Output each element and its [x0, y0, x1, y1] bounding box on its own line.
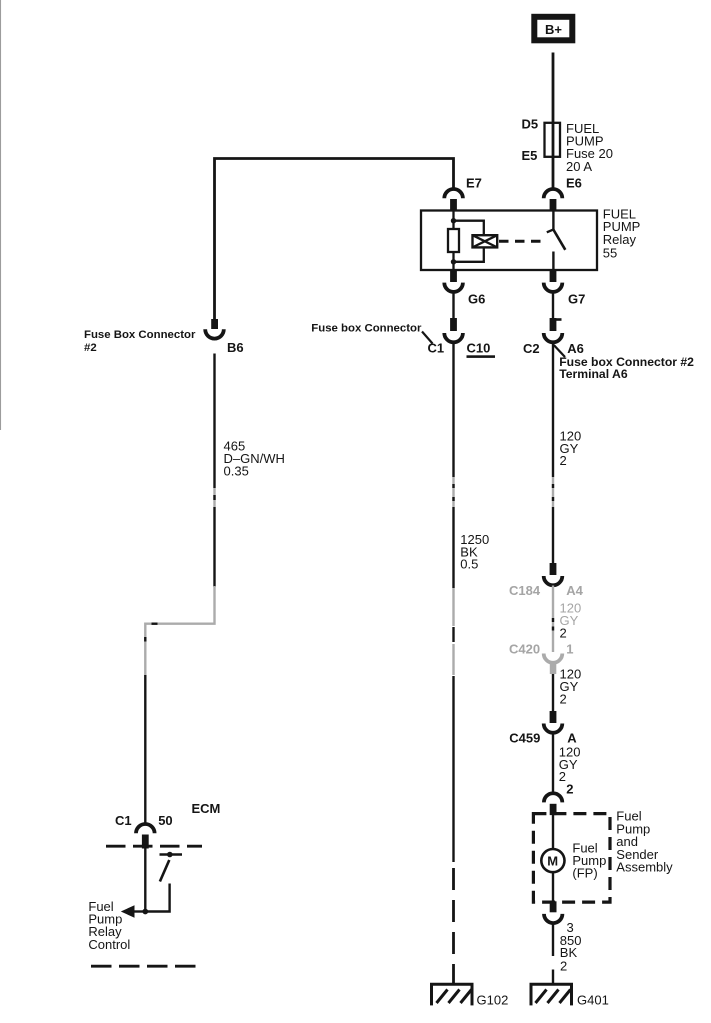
svg-text:Control: Control [88, 937, 130, 952]
svg-text:G401: G401 [577, 993, 609, 1008]
svg-text:C1: C1 [115, 813, 132, 828]
svg-text:G102: G102 [477, 993, 509, 1008]
svg-text:55: 55 [603, 245, 617, 260]
svg-text:2: 2 [560, 958, 567, 973]
svg-text:E7: E7 [466, 176, 482, 191]
svg-text:G7: G7 [568, 291, 585, 306]
svg-text:Fuse Box Connector: Fuse Box Connector [84, 329, 196, 341]
svg-text:B6: B6 [227, 340, 244, 355]
svg-text:Assembly: Assembly [616, 860, 673, 875]
svg-text:M: M [547, 854, 558, 869]
svg-text:E5: E5 [522, 148, 538, 163]
svg-text:1: 1 [566, 641, 573, 656]
svg-text:2: 2 [560, 453, 567, 468]
svg-text:ECM: ECM [192, 801, 221, 816]
svg-text:C10: C10 [467, 341, 491, 356]
svg-text:0.35: 0.35 [224, 463, 249, 478]
svg-text:C184: C184 [509, 583, 541, 598]
svg-text:C2: C2 [523, 341, 540, 356]
svg-text:C459: C459 [509, 731, 540, 746]
svg-text:Terminal A6: Terminal A6 [559, 367, 628, 381]
svg-text:2: 2 [560, 692, 567, 707]
svg-text:E6: E6 [566, 176, 582, 191]
svg-text:50: 50 [158, 813, 172, 828]
svg-text:A6: A6 [567, 341, 584, 356]
svg-text:0.5: 0.5 [460, 557, 478, 572]
svg-text:A: A [567, 731, 577, 746]
svg-text:A4: A4 [566, 583, 583, 598]
svg-text:Fuse box Connector: Fuse box Connector [311, 322, 422, 334]
svg-text:2: 2 [566, 782, 573, 797]
svg-text:2: 2 [559, 769, 566, 784]
svg-text:D5: D5 [522, 117, 539, 132]
svg-text:B+: B+ [545, 22, 562, 37]
svg-text:#2: #2 [84, 342, 97, 354]
svg-text:(FP): (FP) [572, 865, 597, 880]
svg-text:2: 2 [560, 626, 567, 641]
svg-text:C420: C420 [509, 641, 540, 656]
svg-text:C1: C1 [428, 341, 445, 356]
svg-text:G6: G6 [468, 291, 485, 306]
svg-text:20 A: 20 A [566, 159, 592, 174]
